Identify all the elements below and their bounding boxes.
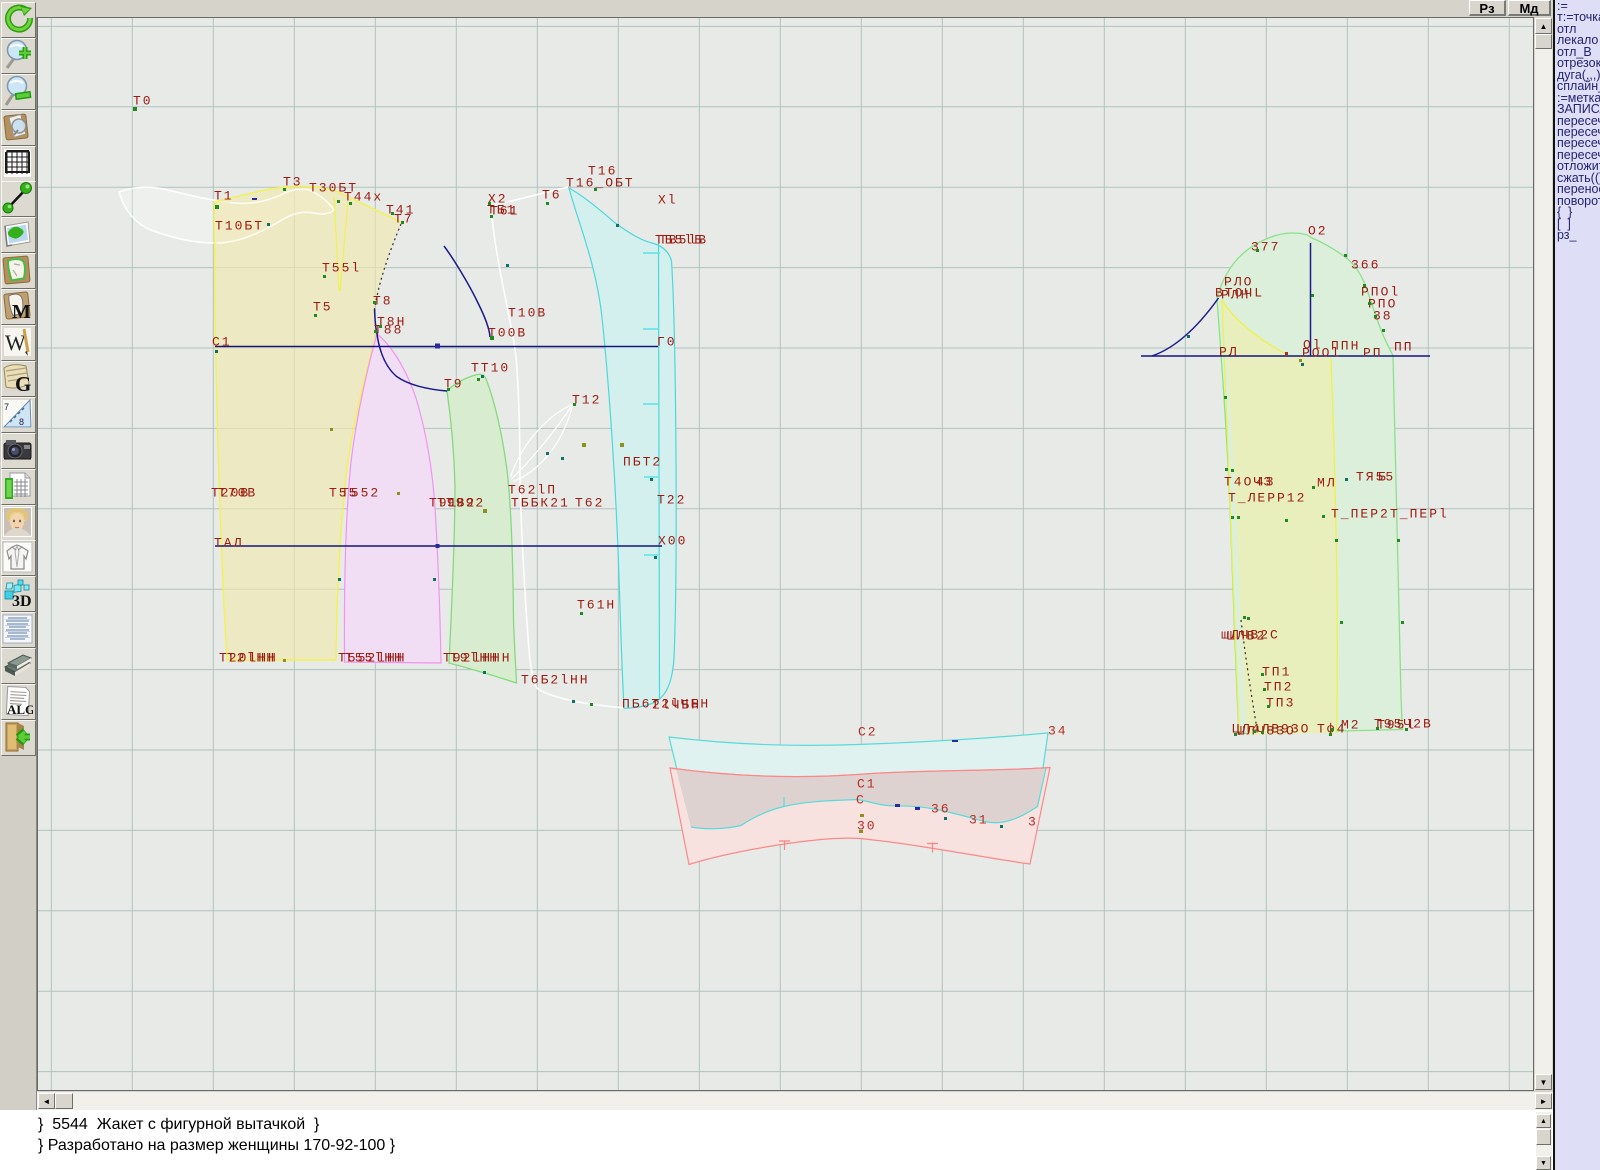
svg-text:Т9: Т9 (444, 377, 464, 392)
svg-text:Т2lНН: Т2lНН (227, 651, 276, 666)
svg-text:Хl: Хl (658, 193, 678, 208)
svg-text:С2: С2 (858, 725, 878, 740)
svg-text:ТП2: ТП2 (1264, 680, 1293, 695)
svg-text:М2: М2 (1341, 718, 1361, 733)
svg-text:8: 8 (19, 417, 24, 427)
svg-text:Т55l: Т55l (322, 261, 361, 276)
svg-text:Т88: Т88 (374, 323, 403, 338)
svg-text:ТТ10: ТТ10 (471, 361, 510, 376)
svg-text:МЛ: МЛ (1317, 476, 1337, 491)
svg-text:ТП1: ТП1 (1262, 665, 1291, 680)
svg-text:377: 377 (1251, 240, 1280, 255)
svg-text:Т62: Т62 (575, 496, 604, 511)
svg-text:Т70В: Т70В (218, 486, 257, 501)
svg-text:Т16_ОБТ: Т16_ОБТ (566, 176, 635, 191)
svg-text:43: 43 (1256, 475, 1276, 490)
svg-text:ПП: ПП (1394, 340, 1414, 355)
svg-text:ШЛЧ8ЗО: ШЛЧ8ЗО (1237, 724, 1296, 739)
svg-text:Т10В: Т10В (508, 306, 547, 321)
svg-text:С: С (856, 793, 866, 808)
svg-text:Т10БТ: Т10БТ (215, 219, 264, 234)
svg-text:РЛН: РЛН (1221, 288, 1250, 303)
svg-text:2lЧБН: 2lЧБН (652, 698, 701, 713)
svg-text:ПБТ2: ПБТ2 (623, 455, 662, 470)
svg-text:Т12: Т12 (572, 393, 601, 408)
svg-text:РП: РП (1363, 346, 1383, 361)
svg-text:С1: С1 (212, 335, 232, 350)
svg-text:Т7: Т7 (394, 212, 414, 227)
svg-text:Т9lНН: Т9lНН (450, 651, 499, 666)
svg-text:31: 31 (969, 813, 989, 828)
svg-text:Т95l: Т95l (1377, 718, 1416, 733)
svg-text:ТББК21: ТББК21 (511, 496, 570, 511)
svg-text:ТАЛ: ТАЛ (214, 536, 243, 551)
svg-text:7: 7 (4, 402, 9, 412)
svg-text:ШЛВ2: ШЛВ2 (1227, 629, 1266, 644)
svg-text:Г0: Г0 (657, 335, 677, 350)
svg-text:Т992: Т992 (446, 496, 485, 511)
svg-text:О2: О2 (1308, 224, 1328, 239)
svg-text:G: G (15, 372, 31, 394)
svg-text:РЛ: РЛ (1219, 345, 1239, 360)
svg-text:Б: Б (1378, 470, 1388, 485)
svg-text:Т552: Т552 (341, 486, 380, 501)
svg-text:Т61Н: Т61Н (577, 598, 616, 613)
svg-text:3D: 3D (12, 593, 32, 609)
svg-text:36: 36 (931, 802, 951, 817)
svg-text:ТЯ55: ТЯ55 (1356, 470, 1395, 485)
svg-text:3: 3 (1028, 815, 1038, 830)
svg-text:Т0: Т0 (133, 94, 153, 109)
svg-text:ТВ5lВ: ТВ5lВ (659, 233, 708, 248)
svg-text:Т_ПЕРl: Т_ПЕРl (1390, 507, 1449, 522)
svg-text:Т55lНН: Т55lНН (345, 651, 404, 666)
svg-text:С1: С1 (857, 777, 877, 792)
svg-text:W: W (5, 330, 26, 355)
svg-text:ALG: ALG (7, 702, 33, 717)
svg-text:Т6: Т6 (542, 188, 562, 203)
svg-text:Т6Б2lНН: Т6Б2lНН (521, 673, 590, 688)
svg-text:Т1: Т1 (214, 189, 234, 204)
svg-text:Т5: Т5 (313, 300, 333, 315)
svg-text:Т22: Т22 (657, 493, 686, 508)
svg-text:366: 366 (1351, 258, 1380, 273)
svg-text:ТП3: ТП3 (1266, 696, 1295, 711)
svg-text:Т3: Т3 (283, 175, 303, 190)
svg-text:Т_ПЕР2: Т_ПЕР2 (1331, 507, 1390, 522)
svg-text:M: M (12, 301, 31, 322)
svg-text:Т_ЛЕРР12: Т_ЛЕРР12 (1228, 491, 1306, 506)
svg-text:34: 34 (1048, 724, 1068, 739)
svg-text:Х00: Х00 (658, 534, 687, 549)
svg-text:РООl: РООl (1302, 346, 1341, 361)
svg-text:Т61: Т61 (490, 204, 519, 219)
